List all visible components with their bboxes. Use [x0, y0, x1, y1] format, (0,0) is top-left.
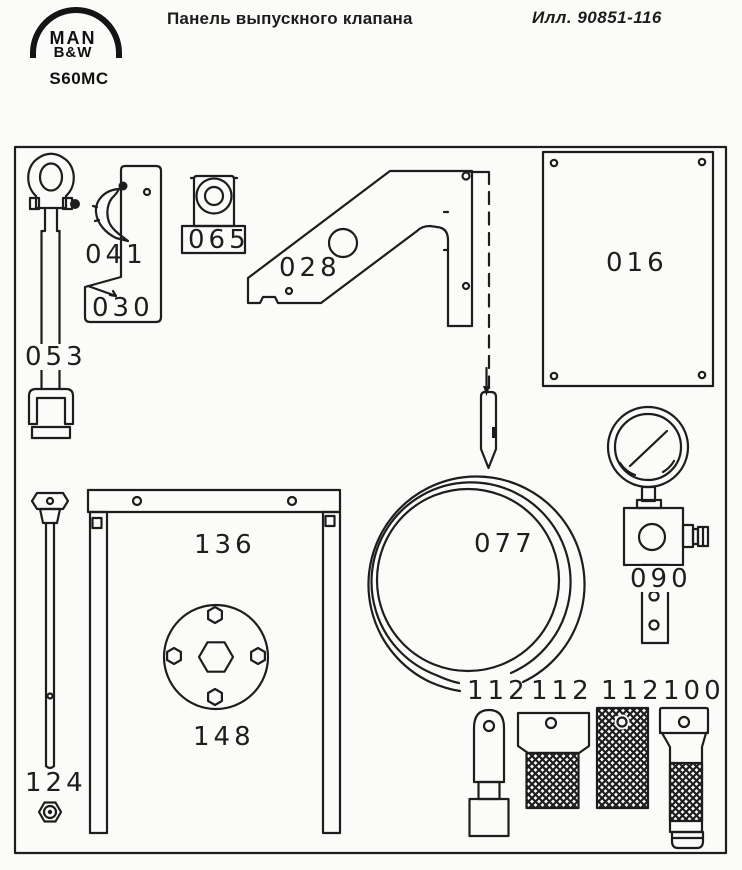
part-label-112c: 112 [601, 678, 663, 704]
part-label-028: 028 [279, 255, 341, 281]
illustration-page: MAN B&W S60MC Панель выпускного клапана … [0, 0, 742, 870]
part-112-grinding-stone-large [597, 708, 648, 808]
part-090-pressure-gauge [608, 407, 708, 643]
part-label-030: 030 [92, 295, 154, 321]
part-label-136: 136 [194, 532, 256, 558]
part-041-hook [93, 182, 128, 242]
part-label-065: 065 [188, 227, 250, 253]
part-label-100: 100 [663, 678, 725, 704]
part-label-090: 090 [627, 566, 695, 592]
part-077-sealing-ring [369, 477, 585, 691]
part-label-016: 016 [606, 250, 668, 276]
part-100-handle-tool [660, 708, 708, 848]
part-148-flange-disc [164, 605, 268, 709]
tool-panel-drawing [0, 0, 742, 870]
part-label-112a: 112 [467, 678, 529, 704]
part-label-148: 148 [193, 724, 255, 750]
part-053-shackle [28, 154, 80, 438]
part-112-punch [470, 710, 509, 836]
part-label-053: 053 [22, 344, 90, 370]
part-112-grinding-stone-small [518, 713, 589, 808]
part-label-112b: 112 [531, 678, 593, 704]
part-028-support-bracket [248, 171, 472, 326]
part-label-041: 041 [85, 242, 147, 268]
part-label-077: 077 [474, 531, 536, 557]
part-label-124: 124 [25, 770, 87, 796]
